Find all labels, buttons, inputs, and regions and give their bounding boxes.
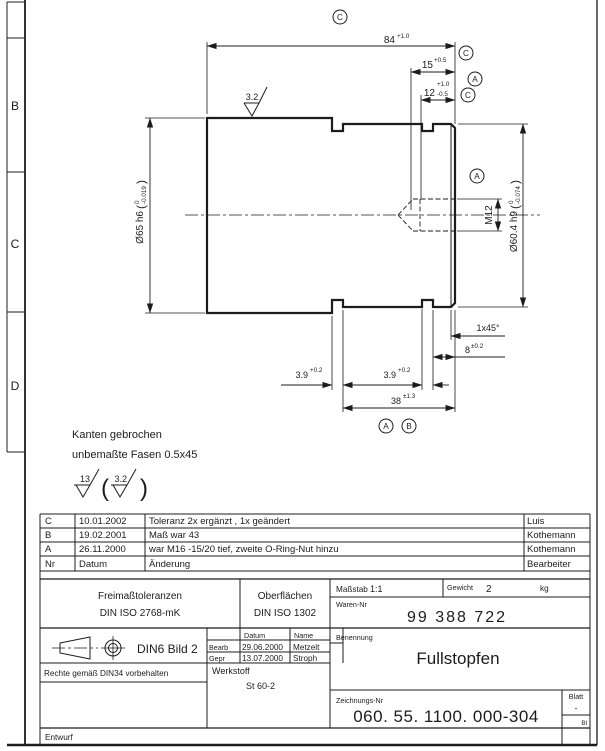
- dim-15-tol: +0.5: [434, 57, 447, 64]
- dim-12-tol-up: +1.0: [437, 81, 450, 88]
- entwurf-label: Entwurf: [45, 733, 73, 742]
- part-outline: [207, 118, 455, 313]
- dim-8-tol: ±0.2: [471, 343, 484, 350]
- massstab-label: Maßstab: [336, 585, 368, 594]
- freimass-line1: Freimaßtoleranzen: [98, 591, 182, 602]
- din6-label: DIN6 Bild 2: [137, 642, 198, 656]
- werkstoff-value: St 60-2: [246, 681, 275, 691]
- blatt-value: -: [575, 703, 578, 713]
- dim-8-value: 8: [465, 345, 470, 355]
- dim-12-tol-dn: -0.5: [437, 91, 448, 98]
- rev-a-text: war M16 -15/20 tief, zweite O-Ring-Nut h…: [148, 544, 339, 555]
- dim-15: 15 +0.5: [411, 57, 455, 72]
- paren-open2: (: [508, 205, 522, 209]
- oberflaechen-line1: Oberflächen: [258, 591, 312, 602]
- dim-84-tol: +1.0: [397, 33, 410, 40]
- blatt-label: Blatt: [569, 692, 583, 701]
- zone-letter-c: C: [11, 237, 20, 251]
- rev-b-name: Kothemann: [527, 530, 576, 541]
- dim-dia65-tol-up: 0: [134, 200, 141, 204]
- zeichnungsnr-value: 060. 55. 1100. 000-304: [353, 707, 539, 726]
- projection-symbol: [52, 636, 125, 660]
- rev-c-name: Luis: [527, 516, 545, 527]
- dim-dia604: Ø60.4 h9 ( 0 -0.074 ): [508, 124, 523, 307]
- border-zone-strip: B C D: [7, 2, 25, 452]
- dim-dia65: Ø65 h6 ( 0 -0.019 ): [134, 118, 150, 313]
- rev-header-nr: Nr: [45, 559, 55, 570]
- roughness-paren-open: (: [101, 475, 109, 502]
- rev-c-nr: C: [45, 516, 52, 527]
- dim-chamfer: 1x45°: [451, 323, 505, 336]
- rev-header-datum: Datum: [79, 559, 107, 570]
- dim-chamfer-value: 1x45°: [476, 323, 500, 333]
- paren-close: ): [134, 180, 148, 184]
- freimass-line2: DIN ISO 2768-mK: [100, 608, 181, 619]
- bearb-label: Bearb: [209, 643, 228, 652]
- zone-letter-b: B: [11, 99, 19, 113]
- warennr-label: Waren-Nr: [336, 600, 367, 609]
- warennr-value: 99 388 722: [407, 609, 507, 626]
- dim-84-value: 84: [384, 35, 396, 46]
- dim-m12-value: M12: [484, 205, 495, 225]
- dim-dia604-tol-dn: -0.074: [515, 186, 522, 204]
- dim-15-value: 15: [422, 60, 434, 71]
- dim-8: 8 ±0.2: [433, 343, 505, 357]
- general-notes: Kanten gebrochen unbemaßte Fasen 0.5x45 …: [72, 429, 197, 502]
- dim-groove1-value: 3.9: [295, 370, 308, 380]
- flag-r2-a: A: [472, 75, 478, 84]
- datum-header: Datum: [244, 631, 265, 640]
- rev-a-name: Kothemann: [527, 544, 576, 555]
- zeichnungsnr-label: Zeichnungs-Nr: [336, 696, 384, 705]
- dim-groove2-tol: +0.2: [398, 367, 411, 374]
- revision-table: C 10.01.2002 Toleranz 2x ergänzt , 1x ge…: [40, 514, 590, 579]
- rev-b-nr: B: [45, 530, 51, 541]
- paren-open: (: [134, 205, 148, 209]
- gewicht-label: Gewicht: [447, 583, 473, 592]
- rev-header-name: Bearbeiter: [527, 559, 571, 570]
- roughness-paren-close: ): [140, 475, 148, 502]
- werkstoff-label: Werkstoff: [212, 666, 250, 676]
- gepr-label: Gepr: [209, 654, 226, 663]
- dim-38-tol: ±1.3: [403, 393, 416, 400]
- rev-b-datum: 19.02.2001: [79, 530, 127, 541]
- rev-c-datum: 10.01.2002: [79, 516, 127, 527]
- dim-dia65-tol-dn: -0.019: [141, 186, 148, 204]
- rechte-note: Rechte gemäß DIN34 vorbehalten: [44, 669, 169, 678]
- title-block: Freimaßtoleranzen DIN ISO 2768-mK Oberfl…: [40, 579, 590, 745]
- dim-12: 12 +1.0 -0.5: [421, 81, 455, 100]
- gepr-datum: 13.07.2000: [242, 654, 283, 663]
- dim-groove1: 3.9 +0.2: [281, 367, 332, 385]
- oberflaechen-line2: DIN ISO 1302: [254, 608, 317, 619]
- rev-a-datum: 26.11.2000: [79, 544, 126, 555]
- bearb-name: Metzelt: [293, 643, 320, 652]
- flag-b1-a: A: [383, 422, 389, 431]
- zone-letter-d: D: [11, 379, 20, 393]
- benennung-value: Fullstopfen: [416, 649, 499, 668]
- benennung-label: Benennung: [336, 633, 373, 642]
- massstab-value: 1:1: [370, 584, 383, 594]
- surface-roughness-top-value: 3.2: [246, 92, 259, 102]
- dim-groove1-tol: +0.2: [310, 367, 323, 374]
- rev-header-text: Änderung: [149, 559, 190, 570]
- name-header: Name: [294, 631, 313, 640]
- note-line1: Kanten gebrochen: [72, 429, 162, 441]
- dim-38: 38 ±1.3: [343, 393, 455, 408]
- dim-groove2-value: 3.9: [383, 370, 396, 380]
- flag-r3-c: C: [465, 91, 471, 100]
- dim-12-value: 12: [424, 88, 436, 99]
- flag-top-c: C: [337, 13, 343, 22]
- rev-a-nr: A: [45, 544, 52, 555]
- dim-dia604-tol-up: 0: [508, 200, 515, 204]
- roughness-general-value: 13: [80, 474, 90, 484]
- gewicht-value: 2: [486, 584, 492, 595]
- roughness-symbol-general: 13: [74, 469, 99, 497]
- gepr-name: Stroph: [293, 654, 318, 663]
- dim-38-value: 38: [391, 396, 401, 406]
- surface-roughness-top: 3.2: [244, 87, 267, 116]
- flag-b2-b: B: [406, 422, 412, 431]
- roughness-symbol-special: 3.2: [111, 469, 136, 497]
- technical-drawing-svg: B C D 84 +1.0 15 +0.5: [0, 0, 605, 751]
- drawing-sheet: B C D 84 +1.0 15 +0.5: [0, 0, 605, 751]
- rev-b-text: Maß war 43: [149, 530, 199, 541]
- note-line2: unbemaßte Fasen 0.5x45: [72, 449, 197, 461]
- blatt-small: Bl: [581, 720, 587, 727]
- roughness-special-value: 3.2: [114, 474, 127, 484]
- dim-dia604-value: Ø60.4 h9: [509, 211, 520, 253]
- dim-dia65-value: Ø65 h6: [135, 211, 146, 244]
- flag-mid-a: A: [474, 172, 480, 181]
- flag-r1-c: C: [463, 49, 469, 58]
- paren-close2: ): [508, 180, 522, 184]
- dim-84: 84 +1.0: [207, 33, 455, 46]
- gewicht-unit: kg: [540, 584, 549, 593]
- rev-c-text: Toleranz 2x ergänzt , 1x geändert: [149, 516, 290, 527]
- bearb-datum: 29.06.2000: [242, 643, 283, 652]
